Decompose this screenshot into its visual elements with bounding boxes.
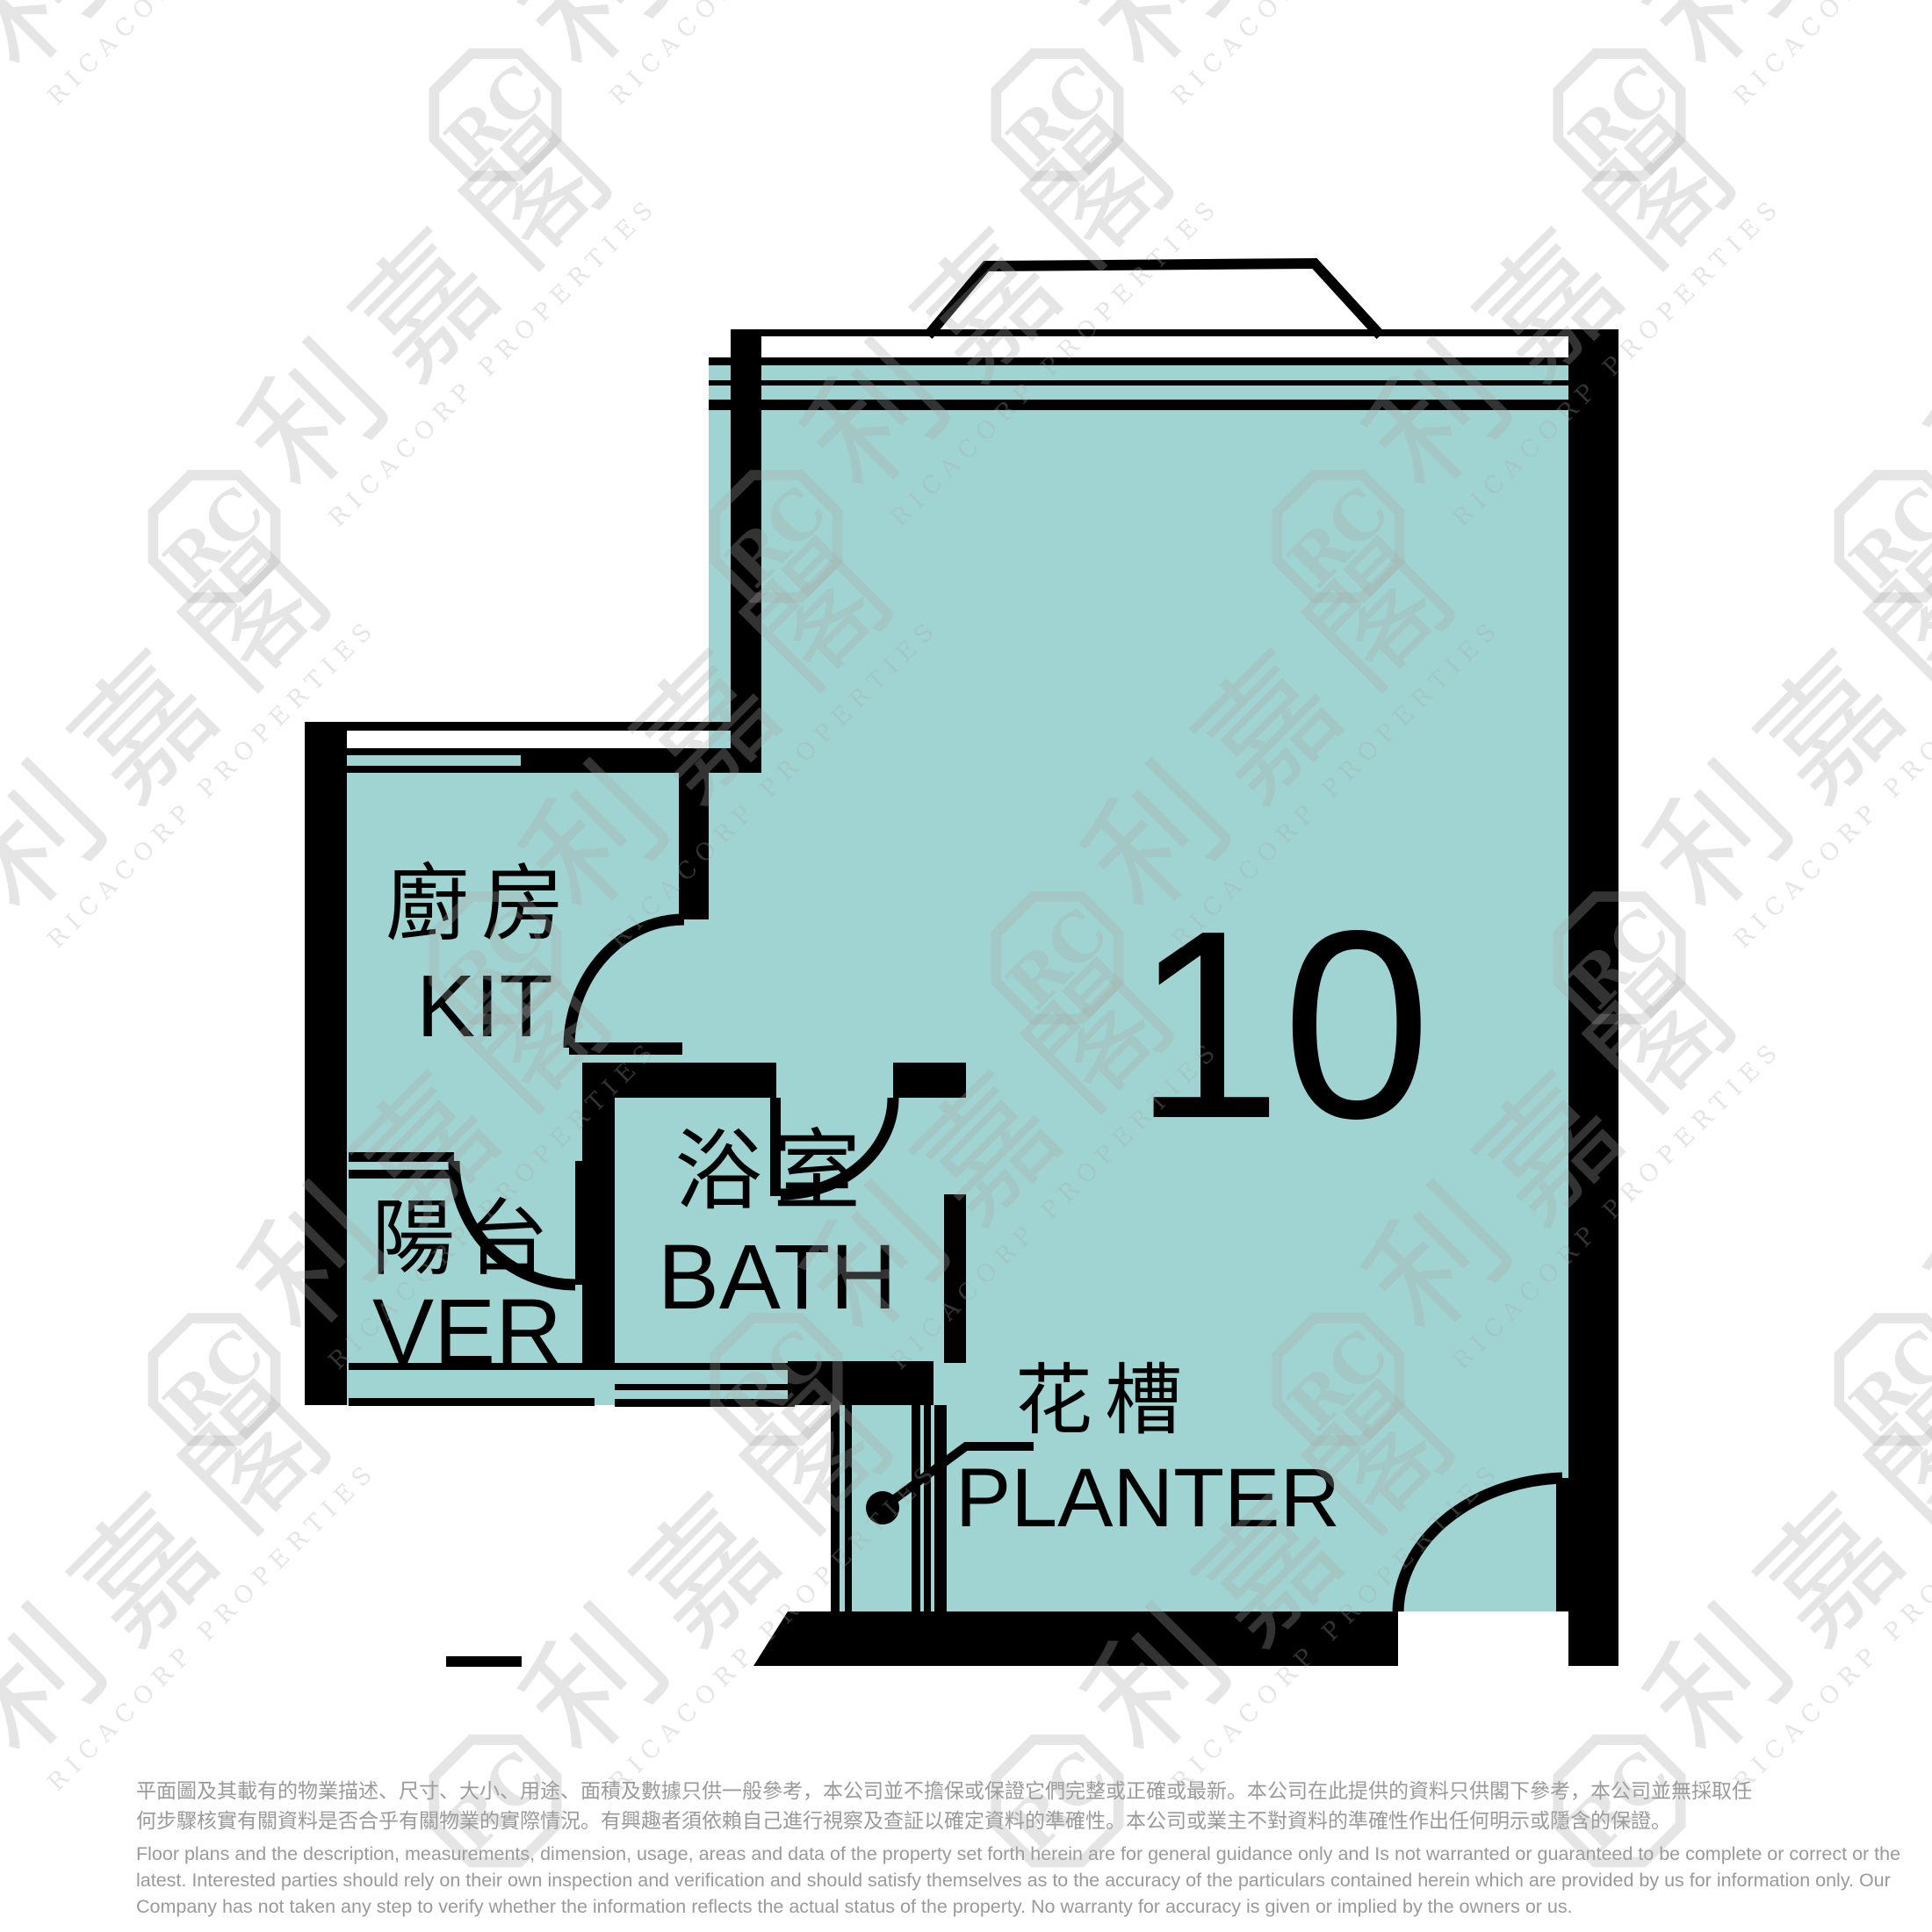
disclaimer-zh-line2: 何步驟核實有關資料是否合乎有關物業的實際情況。有興趣者須依賴自己進行視察及查証以… [136, 1806, 1813, 1835]
label-verandah-zh: 陽台 [371, 1193, 559, 1286]
unit-number: 10 [1133, 875, 1431, 1174]
label-verandah-en: VER [372, 1280, 562, 1383]
label-planter-zh: 花槽 [1015, 1357, 1194, 1444]
label-planter-en: PLANTER [955, 1452, 1340, 1545]
label-kitchen-en: KIT [416, 957, 553, 1056]
label-bath-en: BATH [658, 1226, 897, 1329]
label-kitchen-zh: 廚房 [386, 858, 577, 951]
disclaimer-zh-line1: 平面圖及其載有的物業描述、尺寸、大小、用途、面積及數據只供一般參考，本公司並不擔… [136, 1776, 1813, 1806]
disclaimer-en-line3: Company has not taken any step to verify… [136, 1893, 1813, 1920]
floor-plan: 廚房 KIT 陽台 VER 浴室 BATH 花槽 PLANTER 10 [0, 0, 1932, 1932]
disclaimer-en-line1: Floor plans and the description, measure… [136, 1841, 1813, 1867]
label-bath-zh: 浴室 [674, 1122, 871, 1221]
bay-window-outline [928, 263, 1381, 335]
disclaimer-block: 平面圖及其載有的物業描述、尺寸、大小、用途、面積及數據只供一般參考，本公司並不擔… [136, 1776, 1813, 1920]
disclaimer-en-line2: latest. Interested parties should rely o… [136, 1867, 1813, 1893]
